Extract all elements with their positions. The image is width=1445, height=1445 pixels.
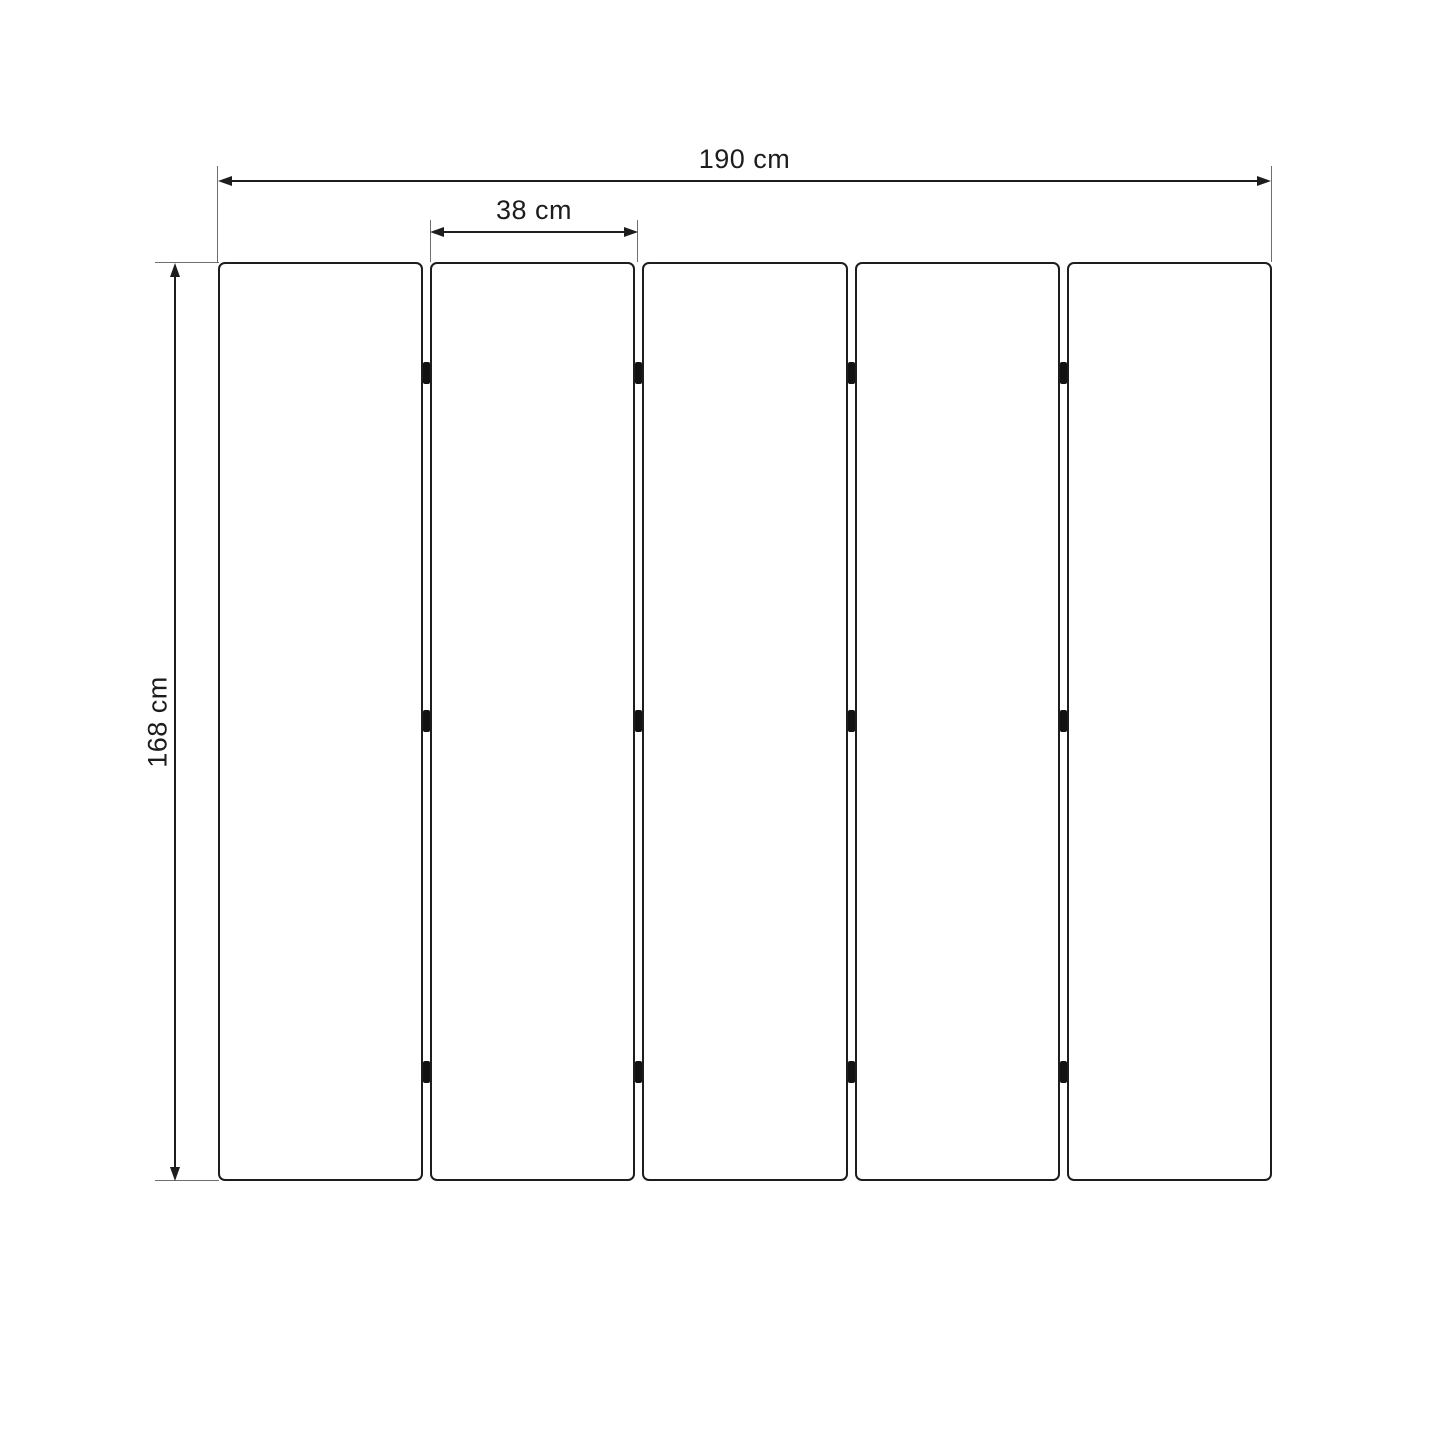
hinge-icon-col4-row1 bbox=[1060, 362, 1067, 384]
hinge-icon-col4-row3 bbox=[1060, 1061, 1067, 1083]
panel-2 bbox=[430, 262, 635, 1181]
hinge-icon-col2-row3 bbox=[635, 1061, 642, 1083]
panel-4 bbox=[855, 262, 1060, 1181]
diagram-canvas: 190 cm 38 cm 168 cm bbox=[0, 0, 1445, 1445]
hinge-icon-col1-row1 bbox=[423, 362, 430, 384]
arrow-right-icon bbox=[1257, 176, 1271, 186]
hinge-icon-col3-row3 bbox=[848, 1061, 855, 1083]
hinge-icon-col2-row1 bbox=[635, 362, 642, 384]
extension-line-total-right bbox=[1271, 166, 1272, 262]
hinge-icon-col1-row2 bbox=[423, 710, 430, 732]
dimension-shaft bbox=[174, 266, 177, 1178]
arrow-up-icon bbox=[170, 263, 180, 277]
arrow-right-icon bbox=[624, 227, 638, 237]
arrow-left-icon bbox=[218, 176, 232, 186]
panel-1 bbox=[218, 262, 423, 1181]
extension-line-height-bottom bbox=[155, 1180, 219, 1181]
panel-5 bbox=[1067, 262, 1272, 1181]
arrow-down-icon bbox=[170, 1167, 180, 1181]
dimension-shaft bbox=[221, 180, 1268, 183]
panel-width-dimension-label: 38 cm bbox=[430, 197, 638, 224]
height-dimension-label: 168 cm bbox=[145, 676, 172, 768]
hinge-icon-col1-row3 bbox=[423, 1061, 430, 1083]
hinge-icon-col2-row2 bbox=[635, 710, 642, 732]
hinge-icon-col4-row2 bbox=[1060, 710, 1067, 732]
hinge-icon-col3-row2 bbox=[848, 710, 855, 732]
extension-line-height-top bbox=[155, 262, 219, 263]
panel-3 bbox=[642, 262, 847, 1181]
arrow-left-icon bbox=[430, 227, 444, 237]
dimension-shaft bbox=[433, 231, 635, 234]
total-width-dimension-label: 190 cm bbox=[218, 146, 1271, 173]
hinge-icon-col3-row1 bbox=[848, 362, 855, 384]
